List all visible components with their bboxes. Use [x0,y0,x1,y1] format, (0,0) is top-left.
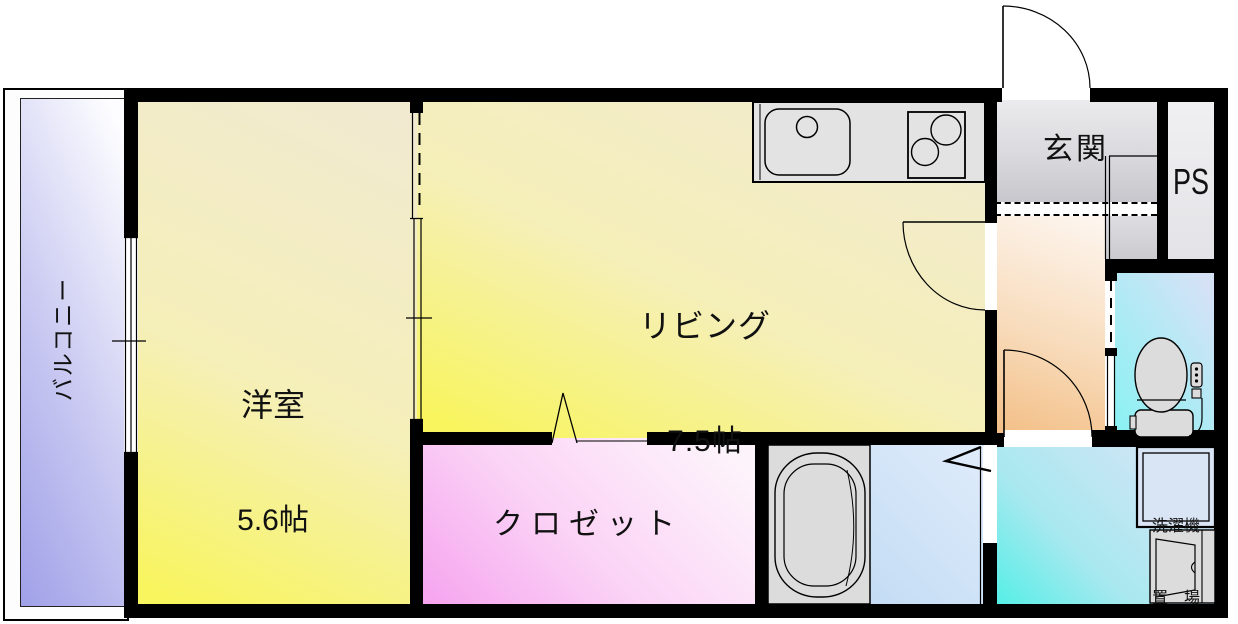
balcony-label: バルコニー [49,249,77,429]
pipe-space-label: PS [1169,160,1214,204]
living-room-size: 7.5帖 [595,424,815,461]
living-door-swing-arc [903,222,985,310]
panel-dot [1195,373,1198,376]
toilet-tank [1135,410,1193,437]
wall-segment [985,102,997,223]
wall-segment [1105,348,1117,356]
laundry-space-label: 洗濯機 置 場 [1136,467,1216,624]
wall-segment [124,88,1002,102]
washroom-doorway [1004,430,1092,447]
closet-opening-fold-symbol [552,393,577,443]
laundry-line1: 洗濯機 [1136,515,1216,539]
wall-segment [997,433,1004,447]
living-hall-doorway [985,223,997,310]
living-room-name: リビング [595,307,815,346]
wall-segment [124,453,138,604]
wall-segment [1214,102,1228,604]
wall-segment [410,432,552,445]
wall-segment [1157,102,1168,262]
wall-segment [983,543,997,604]
toilet-panel-button [1192,389,1201,398]
kitchen-counter-top [753,102,985,182]
toilet-bowl [1135,338,1187,412]
washroom-door-swing-arc [1004,350,1092,437]
toilet-tank-handle [1130,416,1136,429]
western-room-name: 洋室 [193,386,353,425]
western-room-size: 5.6帖 [193,503,353,540]
living-room-label: リビング 7.5帖 [595,229,815,539]
toilet-door-panel [1108,356,1115,426]
balcony-window-glass-lines [124,237,138,453]
room-divider-sliding-door [410,218,423,420]
kitchen-counter [753,102,985,182]
panel-dot [1195,367,1198,370]
floor-plan: バルコニー 洋室 5.6帖 リビング 7.5帖 クロゼット 玄関 PS 洗濯機 … [0,0,1238,624]
laundry-line2: 置 場 [1136,587,1216,611]
entrance-label: 玄関 [1014,132,1138,169]
wall-segment [124,102,138,237]
wall-segment [410,98,423,113]
wall-segment [985,310,997,437]
panel-dot [1195,379,1198,382]
door-openings [983,223,1092,543]
western-room-label: 洋室 5.6帖 [193,308,353,618]
wall-segment [1090,88,1228,102]
closet-label: クロゼット [458,507,718,544]
wall-segment [1105,273,1117,281]
entrance-door-swing-arc [1003,6,1090,88]
bathroom-doorway [983,447,997,543]
toilet-fixture [1130,338,1202,437]
wall-segment [1105,259,1228,273]
entrance-step-edge [1106,156,1158,259]
kitchen-faucet [797,117,818,138]
wall-segment [410,420,423,604]
